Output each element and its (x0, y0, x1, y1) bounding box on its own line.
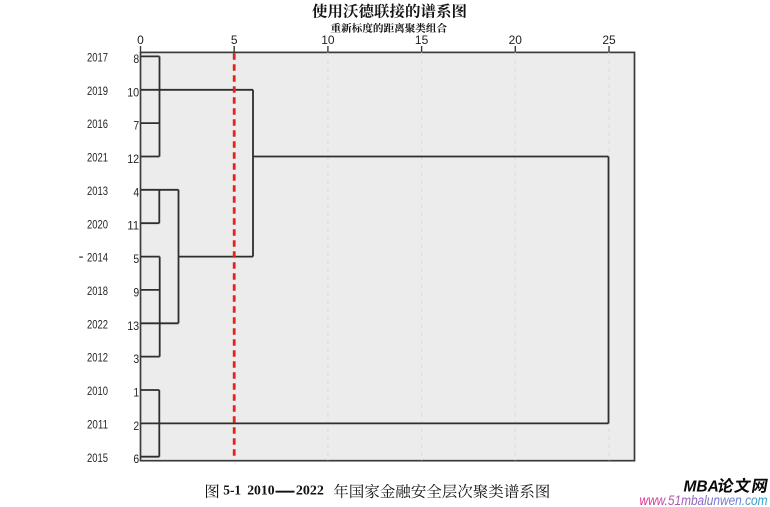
svg-text:2019: 2019 (87, 84, 108, 98)
svg-text:0: 0 (137, 33, 144, 47)
svg-text:8: 8 (133, 52, 139, 66)
svg-text:10: 10 (127, 85, 139, 99)
svg-text:6: 6 (133, 452, 139, 466)
svg-text:2016: 2016 (87, 117, 108, 131)
svg-text:2014: 2014 (87, 251, 108, 265)
svg-text:2022: 2022 (87, 317, 108, 331)
svg-text:2015: 2015 (87, 451, 108, 465)
svg-text:2012: 2012 (87, 351, 108, 365)
svg-text:9: 9 (133, 285, 139, 299)
svg-text:2017: 2017 (87, 51, 108, 65)
svg-text:5-1: 5-1 (223, 483, 241, 498)
svg-text:2010: 2010 (87, 384, 108, 398)
svg-text:2022: 2022 (296, 483, 324, 498)
svg-text:25: 25 (602, 33, 616, 47)
svg-text:13: 13 (127, 319, 139, 333)
svg-text:4: 4 (133, 185, 139, 199)
svg-text:2010: 2010 (247, 483, 274, 498)
svg-text:3: 3 (133, 352, 139, 366)
svg-text:www.51mbalunwen.com: www.51mbalunwen.com (640, 493, 768, 507)
svg-text:2: 2 (133, 419, 139, 433)
svg-text:20: 20 (509, 33, 523, 47)
svg-text:10: 10 (321, 33, 335, 47)
svg-text:2020: 2020 (87, 217, 108, 231)
svg-text:5: 5 (231, 33, 238, 47)
svg-text:2011: 2011 (87, 418, 108, 432)
svg-text:7: 7 (133, 119, 139, 133)
svg-text:1: 1 (133, 386, 139, 400)
svg-text:15: 15 (415, 33, 429, 47)
svg-text:11: 11 (127, 219, 139, 233)
svg-text:5: 5 (133, 252, 139, 266)
svg-text:2018: 2018 (87, 284, 108, 298)
svg-text:2021: 2021 (87, 151, 108, 165)
svg-text:12: 12 (127, 152, 139, 166)
svg-text:2013: 2013 (87, 184, 108, 198)
